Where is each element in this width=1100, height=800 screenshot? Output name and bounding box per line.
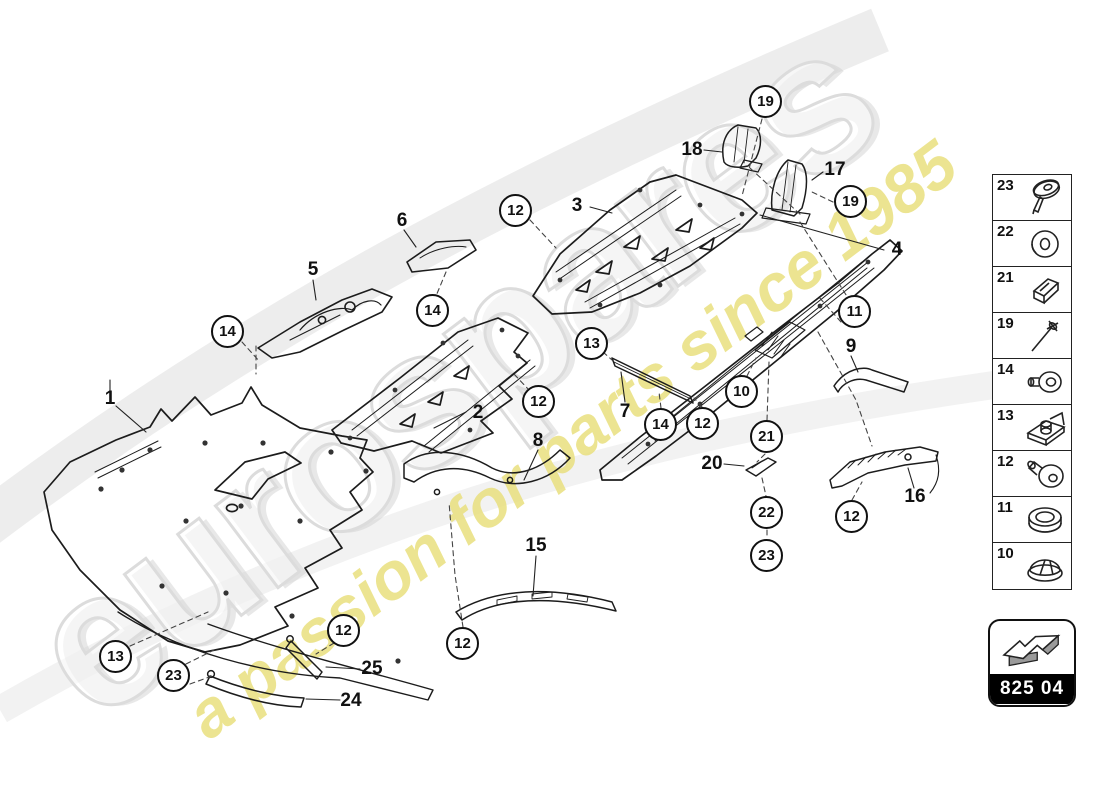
sidebar-item-11[interactable]: 11	[992, 496, 1072, 544]
sidebar-item-number: 13	[997, 407, 1014, 424]
part-number-label-2: 2	[473, 402, 484, 424]
push-rivet-icon	[1020, 177, 1070, 219]
sidebar-item-number: 22	[997, 223, 1014, 240]
part-code-label: 825 04	[990, 674, 1074, 704]
spring-clip-icon	[1020, 269, 1070, 311]
callout-circle-22[interactable]: 22	[750, 496, 783, 529]
callout-circle-12[interactable]: 12	[446, 627, 479, 660]
sidebar-item-12[interactable]: 12	[992, 450, 1072, 498]
fastener-sidebar: 232221191413121110	[992, 174, 1072, 590]
callout-circle-14[interactable]: 14	[211, 315, 244, 348]
part-number-label-16: 16	[904, 486, 925, 508]
callout-circle-12[interactable]: 12	[835, 500, 868, 533]
round-head-screw-icon	[1020, 361, 1070, 403]
sidebar-item-number: 10	[997, 545, 1014, 562]
callout-circle-23[interactable]: 23	[750, 539, 783, 572]
part-number-label-8: 8	[533, 430, 544, 452]
callout-circle-12[interactable]: 12	[499, 194, 532, 227]
parts-diagram-page: eurospares a passion for parts since 198…	[0, 0, 1100, 800]
callout-circle-13[interactable]: 13	[575, 327, 608, 360]
callout-circle-19[interactable]: 19	[749, 85, 782, 118]
callout-circle-11[interactable]: 11	[838, 295, 871, 328]
sidebar-item-number: 11	[997, 499, 1013, 516]
blind-rivet-icon	[1020, 315, 1070, 357]
flat-head-fastener-icon	[1020, 453, 1070, 495]
washer-icon	[1020, 223, 1070, 265]
sidebar-item-19[interactable]: 19	[992, 312, 1072, 360]
sidebar-item-number: 21	[997, 269, 1014, 286]
sidebar-item-number: 12	[997, 453, 1014, 470]
callout-circle-12[interactable]: 12	[327, 614, 360, 647]
callout-layer: 1912191414121314121021222311121323121212…	[0, 0, 1100, 800]
sidebar-item-number: 14	[997, 361, 1014, 378]
part-number-label-20: 20	[701, 453, 722, 475]
part-number-label-7: 7	[620, 401, 631, 423]
cap-plug-icon	[1020, 545, 1070, 587]
part-number-label-9: 9	[846, 336, 857, 358]
sidebar-item-21[interactable]: 21	[992, 266, 1072, 314]
sidebar-item-14[interactable]: 14	[992, 358, 1072, 406]
callout-circle-19[interactable]: 19	[834, 185, 867, 218]
sidebar-item-number: 23	[997, 177, 1014, 194]
part-number-label-17: 17	[824, 159, 845, 181]
part-number-label-3: 3	[572, 195, 583, 217]
callout-circle-21[interactable]: 21	[750, 420, 783, 453]
sidebar-item-13[interactable]: 13	[992, 404, 1072, 452]
sidebar-item-number: 19	[997, 315, 1014, 332]
sidebar-item-10[interactable]: 10	[992, 542, 1072, 590]
part-number-label-1: 1	[105, 388, 116, 410]
part-code-box: 825 04	[988, 619, 1076, 707]
callout-circle-12[interactable]: 12	[686, 407, 719, 440]
callout-circle-14[interactable]: 14	[644, 408, 677, 441]
part-number-label-6: 6	[397, 210, 408, 232]
callout-circle-13[interactable]: 13	[99, 640, 132, 673]
section-arrow-icon	[990, 621, 1074, 674]
callout-circle-12[interactable]: 12	[522, 385, 555, 418]
part-number-label-18: 18	[681, 139, 702, 161]
part-number-label-15: 15	[525, 535, 546, 557]
part-number-label-5: 5	[308, 259, 319, 281]
callout-circle-10[interactable]: 10	[725, 375, 758, 408]
callout-circle-14[interactable]: 14	[416, 294, 449, 327]
grommet-icon	[1020, 499, 1070, 541]
part-number-label-25: 25	[361, 658, 382, 680]
sidebar-item-23[interactable]: 23	[992, 174, 1072, 222]
part-number-label-4: 4	[892, 239, 903, 261]
sidebar-item-22[interactable]: 22	[992, 220, 1072, 268]
callout-circle-23[interactable]: 23	[157, 659, 190, 692]
part-number-label-24: 24	[340, 690, 361, 712]
mounting-clip-icon	[1020, 407, 1070, 449]
